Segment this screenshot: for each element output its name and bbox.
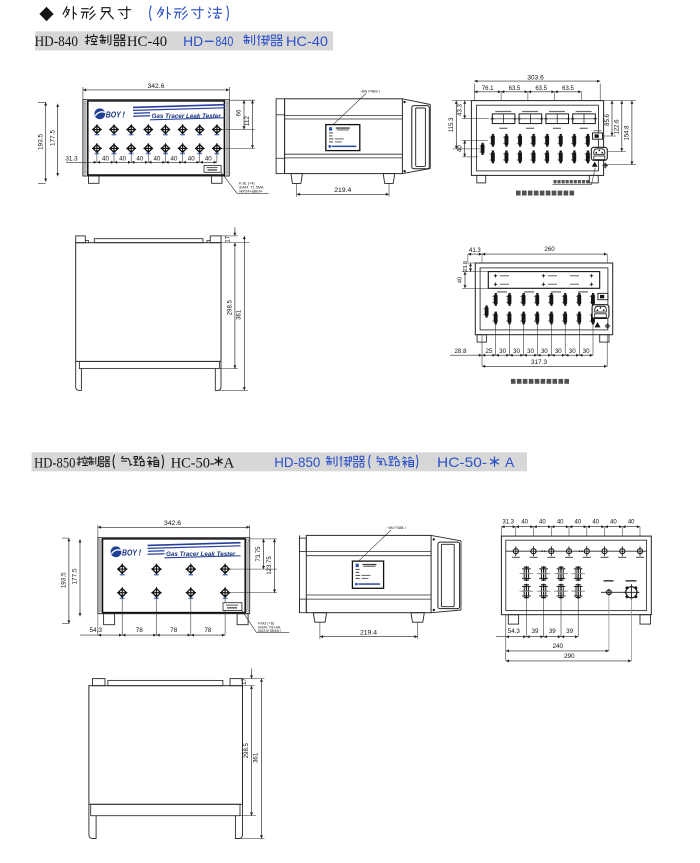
svg-text:54.3: 54.3: [508, 628, 521, 635]
svg-text:40: 40: [628, 520, 635, 526]
svg-text:HC-50-: HC-50-: [437, 455, 487, 470]
svg-text:361: 361: [236, 309, 242, 320]
svg-text:40: 40: [457, 277, 463, 283]
svg-text:31.3: 31.3: [502, 520, 514, 526]
svg-text:76.1: 76.1: [482, 86, 494, 92]
svg-text:~BN P4B3 I: ~BN P4B3 I: [360, 89, 380, 93]
svg-text:40: 40: [205, 156, 212, 163]
svg-text:40: 40: [610, 520, 617, 526]
svg-text:78: 78: [170, 627, 178, 634]
svg-text:361: 361: [254, 752, 260, 763]
svg-text:/AP24+8BE#+: /AP24+8BE#+: [239, 190, 264, 194]
svg-text:54.3: 54.3: [89, 627, 102, 634]
svg-text:193.5: 193.5: [60, 572, 67, 588]
svg-text:40: 40: [102, 156, 109, 163]
svg-text:30: 30: [555, 348, 562, 355]
svg-text:40: 40: [592, 520, 599, 526]
svg-text:HC-50-: HC-50-: [171, 455, 215, 471]
svg-text:219.4: 219.4: [360, 629, 377, 636]
svg-text:HC-40: HC-40: [286, 34, 328, 49]
svg-text:40: 40: [119, 156, 126, 163]
svg-text:30: 30: [569, 348, 576, 355]
svg-text:122.6: 122.6: [615, 119, 621, 135]
svg-text:40: 40: [557, 520, 564, 526]
svg-text:63.5: 63.5: [509, 86, 521, 92]
svg-text:342.6: 342.6: [164, 520, 181, 527]
svg-text:HD-840: HD-840: [35, 34, 78, 50]
svg-text:40: 40: [188, 156, 195, 163]
svg-text:30: 30: [541, 348, 548, 355]
svg-text:A: A: [505, 455, 515, 470]
svg-text:85.6: 85.6: [605, 114, 611, 126]
svg-text:290: 290: [564, 653, 575, 660]
svg-text:298.5: 298.5: [244, 743, 250, 759]
svg-text:40: 40: [575, 520, 582, 526]
svg-text:840: 840: [215, 34, 233, 49]
svg-text:298.5: 298.5: [227, 300, 233, 316]
svg-text:HD-850: HD-850: [274, 455, 320, 470]
svg-text:40: 40: [457, 145, 463, 152]
svg-text:40: 40: [153, 156, 160, 163]
svg-text:HC-40: HC-40: [127, 34, 167, 50]
svg-text:317.3: 317.3: [531, 359, 547, 366]
svg-text:177.5: 177.5: [72, 568, 79, 584]
svg-text:A: A: [224, 455, 235, 471]
svg-text:31.3: 31.3: [65, 155, 78, 162]
svg-text:177.5: 177.5: [50, 130, 57, 146]
svg-text:30: 30: [583, 348, 590, 355]
svg-text:28.8: 28.8: [454, 348, 467, 355]
svg-text:30: 30: [513, 348, 520, 355]
svg-text:112: 112: [244, 116, 251, 126]
svg-text:66: 66: [236, 109, 243, 116]
svg-text:193.5: 193.5: [37, 134, 44, 150]
svg-text:HD: HD: [183, 34, 203, 49]
svg-text:78: 78: [204, 627, 212, 634]
svg-text:!: !: [122, 110, 125, 119]
svg-text:39: 39: [549, 628, 556, 635]
svg-text:123.75: 123.75: [267, 556, 273, 575]
svg-text:~8N F38B I: ~8N F38B I: [386, 526, 405, 530]
svg-text:17: 17: [242, 678, 248, 685]
svg-text:303.6: 303.6: [527, 75, 544, 82]
svg-text:240: 240: [552, 643, 563, 650]
svg-text:BOY: BOY: [122, 548, 138, 557]
svg-text:25: 25: [485, 348, 492, 355]
svg-text:BOY: BOY: [106, 110, 122, 119]
svg-text:154.8: 154.8: [625, 125, 631, 141]
svg-text:78: 78: [136, 627, 144, 634]
svg-text:HD-850: HD-850: [34, 455, 75, 471]
svg-text:39: 39: [566, 628, 573, 635]
svg-text:63.5: 63.5: [535, 86, 547, 92]
svg-text:219.4: 219.4: [334, 187, 351, 194]
svg-text:23.8: 23.8: [463, 261, 469, 272]
svg-text:63.5: 63.5: [562, 86, 574, 92]
svg-text:30: 30: [527, 348, 534, 355]
svg-text:!: !: [139, 548, 142, 557]
svg-text:/A9Z4+0BE#+: /A9Z4+0BE#+: [258, 629, 283, 633]
svg-text:342.6: 342.6: [147, 83, 164, 90]
svg-text:39: 39: [532, 628, 539, 635]
svg-text:30: 30: [499, 348, 506, 355]
svg-text:73.75: 73.75: [256, 546, 262, 562]
svg-text:40: 40: [171, 156, 178, 163]
svg-text:43.3: 43.3: [457, 104, 463, 116]
svg-text:41.3: 41.3: [469, 248, 481, 254]
svg-text:40: 40: [539, 520, 546, 526]
svg-text:40: 40: [136, 156, 143, 163]
svg-text:17: 17: [225, 235, 231, 242]
svg-text:115.3: 115.3: [449, 117, 455, 132]
svg-text:40: 40: [521, 520, 528, 526]
svg-text:260: 260: [544, 246, 555, 253]
